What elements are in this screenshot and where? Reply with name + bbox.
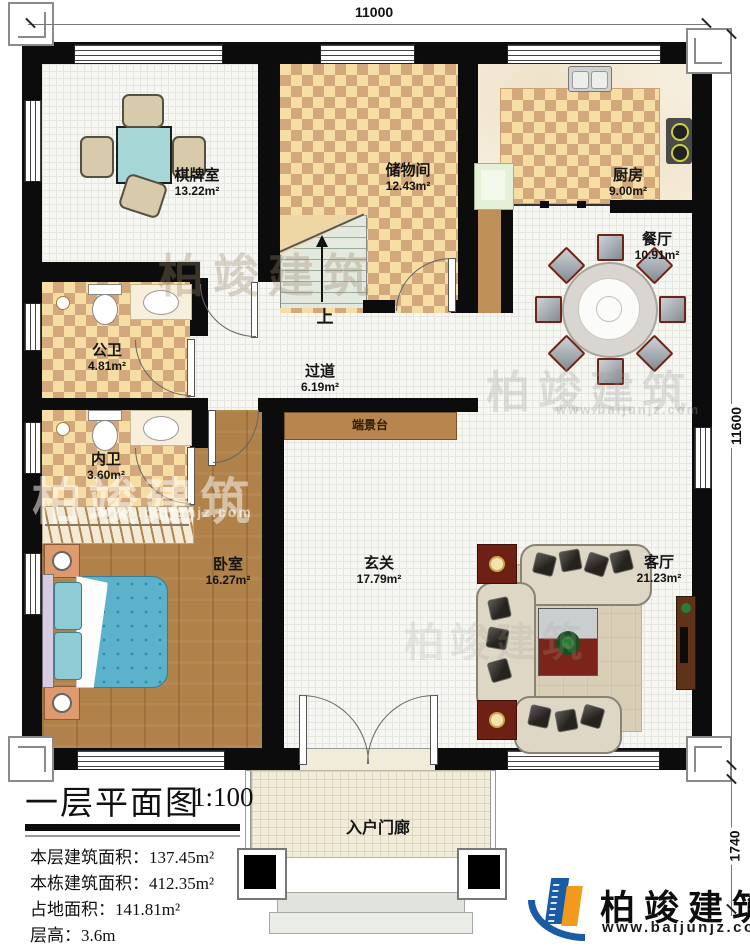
sink-basin-right <box>591 71 608 89</box>
side-table-bottom-medallion <box>489 712 505 728</box>
porch-step-2 <box>269 912 473 934</box>
dining-chair-s <box>597 358 624 385</box>
label-stairs-up: 上 <box>317 309 334 328</box>
corridor-name: 过道 <box>301 364 339 381</box>
publicbath-vanity <box>130 284 192 320</box>
dimension-tick-top-right <box>701 18 712 29</box>
game-room-area: 13.22m² <box>174 185 219 198</box>
corner-ornament-top-right-inner <box>694 38 722 64</box>
wall-corridor-south-b <box>258 398 478 412</box>
stairs-up-text: 上 <box>317 308 334 327</box>
privatebath-drain <box>56 422 70 436</box>
corner-ornament-bottom-left-inner <box>18 746 46 772</box>
coffee-table <box>538 608 598 676</box>
stove-burner-2 <box>671 144 689 162</box>
dimension-porch-text: 1740 <box>727 827 743 864</box>
dining-table-center <box>596 296 622 322</box>
info-row-4: 层高：3.6m <box>30 921 115 946</box>
window-top-kitchen <box>507 44 661 64</box>
wardrobe <box>42 506 194 544</box>
public-bath-name: 公卫 <box>88 343 126 360</box>
bedroom-name: 卧室 <box>206 557 251 574</box>
sofa-left-cushion-1 <box>487 596 512 621</box>
nightstand-bottom-lamp <box>52 693 72 713</box>
dining-table <box>562 262 658 358</box>
stove-burner-1 <box>671 123 689 141</box>
nightstand-bottom <box>44 686 80 720</box>
bed-pillow-1 <box>54 582 82 630</box>
info-row-4-value: 3.6m <box>81 926 115 945</box>
dining-chair-e <box>659 296 686 323</box>
kitchen-sink <box>568 66 612 92</box>
window-bottom-bedroom <box>77 750 225 770</box>
title-rule-thick <box>25 824 240 831</box>
info-row-2: 本栋建筑面积：412.35m² <box>30 869 214 894</box>
kitchen-stove <box>666 118 692 164</box>
side-table-top-medallion <box>489 556 505 572</box>
private-bath-area: 3.60m² <box>87 469 125 482</box>
porch-column-left-core <box>244 855 276 889</box>
bed-pillow-2 <box>54 632 82 680</box>
game-room-name: 棋牌室 <box>174 168 219 185</box>
info-row-3: 占地面积：141.81m² <box>30 895 180 920</box>
window-left-privatebath <box>24 422 42 474</box>
foyer-area: 17.79m² <box>357 573 402 586</box>
dining-chair-n <box>597 234 624 261</box>
dining-room-area: 10.91m² <box>635 249 680 262</box>
sofa-top-cushion-2 <box>558 548 582 572</box>
plan-scale: 1:100 <box>192 782 254 813</box>
side-table-top <box>477 544 517 584</box>
living-room-name: 客厅 <box>637 555 682 572</box>
sofa-bottom-cushion-2 <box>554 708 578 732</box>
logo-swoosh-icon <box>528 900 585 941</box>
publicbath-sink <box>143 290 179 315</box>
label-public-bath: 公卫 4.81m² <box>88 343 126 373</box>
kitchen-name: 厨房 <box>609 168 647 185</box>
info-row-2-label: 本栋建筑面积： <box>30 874 149 893</box>
label-porch: 入户门廊 <box>346 820 410 838</box>
label-bedroom: 卧室 16.27m² <box>206 557 251 587</box>
title-rule-thin <box>25 835 240 837</box>
wall-storage-bottom-a <box>363 300 395 313</box>
label-game-room: 棋牌室 13.22m² <box>174 168 219 198</box>
corner-ornament-bottom-right <box>686 736 732 782</box>
wardrobe-rod <box>45 524 189 526</box>
info-row-1: 本层建筑面积：137.45m² <box>30 843 214 868</box>
private-bath-name: 内卫 <box>87 452 125 469</box>
storage-room-area: 12.43m² <box>385 180 430 193</box>
tv-screen <box>680 627 688 663</box>
kitchen-opening-dash-2 <box>577 201 586 208</box>
brand-url: www.baijunjz.com <box>602 919 750 936</box>
porch-column-right-core <box>468 855 500 889</box>
label-console-table: 端景台 <box>352 416 388 434</box>
label-kitchen: 厨房 9.00m² <box>609 168 647 198</box>
sofa-left-cushion-2 <box>485 626 509 650</box>
publicbath-drain <box>56 296 70 310</box>
privatebath-sink <box>143 416 179 441</box>
info-row-3-label: 占地面积： <box>30 900 115 919</box>
corner-ornament-bottom-right-inner <box>694 746 722 772</box>
porch-step-1 <box>277 892 465 914</box>
side-table-bottom <box>477 700 517 740</box>
nightstand-top-lamp <box>52 551 72 571</box>
label-dining-room: 餐厅 10.91m² <box>635 232 680 262</box>
wall-gameroom-right <box>258 64 280 282</box>
label-corridor: 过道 6.19m² <box>301 364 339 394</box>
tv-plant <box>681 603 691 613</box>
game-table <box>116 126 172 184</box>
bedroom-area: 16.27m² <box>206 574 251 587</box>
nightstand-top <box>44 544 80 578</box>
wall-kitchen-stub <box>501 202 513 313</box>
info-row-1-label: 本层建筑面积： <box>30 848 149 867</box>
game-chair-left <box>80 136 114 178</box>
stair-direction-arrowhead <box>316 235 328 247</box>
porch-column-left <box>237 848 287 900</box>
window-left-gameroom <box>24 100 42 182</box>
dimension-line-right <box>731 30 732 770</box>
dimension-line-top <box>28 24 708 25</box>
refrigerator-highlight <box>481 170 505 200</box>
living-room-area: 21.23m² <box>637 572 682 585</box>
window-left-bedroom <box>24 553 42 615</box>
kitchen-area: 9.00m² <box>609 185 647 198</box>
floor-plan-page: 棋牌室 13.22m² 储物间 12.43m² 厨房 9.00m² 餐厅 10.… <box>0 0 750 950</box>
coffee-table-plant <box>556 631 580 655</box>
bed-headboard <box>42 574 54 688</box>
wall-gameroom-bottom <box>42 262 200 282</box>
wall-kitchen-dining <box>610 200 692 213</box>
plan-title: 一层平面图 <box>25 776 200 824</box>
refrigerator <box>474 163 514 210</box>
window-top-storage <box>320 44 415 64</box>
wall-corridor-south-a <box>22 398 208 410</box>
dining-chair-w <box>535 296 562 323</box>
label-living-room: 客厅 21.23m² <box>637 555 682 585</box>
porch-name: 入户门廊 <box>346 820 410 837</box>
game-chair-top <box>122 94 164 128</box>
corridor-area: 6.19m² <box>301 381 339 394</box>
dimension-top-text: 11000 <box>352 4 396 20</box>
info-row-1-value: 137.45m² <box>149 848 214 867</box>
window-left-publicbath <box>24 303 42 351</box>
info-row-4-label: 层高： <box>30 926 81 945</box>
corner-ornament-top-right <box>686 28 732 74</box>
wall-privatebath-right <box>190 410 208 448</box>
sink-basin-left <box>572 71 589 89</box>
label-private-bath: 内卫 3.60m² <box>87 452 125 482</box>
console-table-name: 端景台 <box>352 418 388 432</box>
storage-room-name: 储物间 <box>385 163 430 180</box>
publicbath-toilet-bowl <box>92 294 118 325</box>
kitchen-opening-dash-1 <box>540 201 549 208</box>
porch-floor <box>251 770 491 858</box>
porch-column-right <box>457 848 507 900</box>
public-bath-area: 4.81m² <box>88 360 126 373</box>
privatebath-toilet-bowl <box>92 420 118 451</box>
stair-direction-line <box>321 246 323 302</box>
brand-logo <box>528 876 592 940</box>
sofa-bottom-cushion-1 <box>527 704 552 729</box>
kitchen-passage-floor <box>478 202 501 313</box>
label-foyer: 玄关 17.79m² <box>357 556 402 586</box>
info-row-2-value: 412.35m² <box>149 874 214 893</box>
dining-room-name: 餐厅 <box>635 232 680 249</box>
info-row-3-value: 141.81m² <box>115 900 180 919</box>
tv-cabinet <box>676 596 696 690</box>
privatebath-vanity <box>130 410 192 446</box>
kitchen-opening-line <box>513 204 610 206</box>
dimension-right-text: 11600 <box>728 404 744 448</box>
label-storage-room: 储物间 12.43m² <box>385 163 430 193</box>
wall-bedroom-right <box>262 412 284 748</box>
foyer-name: 玄关 <box>357 556 402 573</box>
window-top-gameroom <box>74 44 223 64</box>
window-right-living <box>694 427 712 489</box>
